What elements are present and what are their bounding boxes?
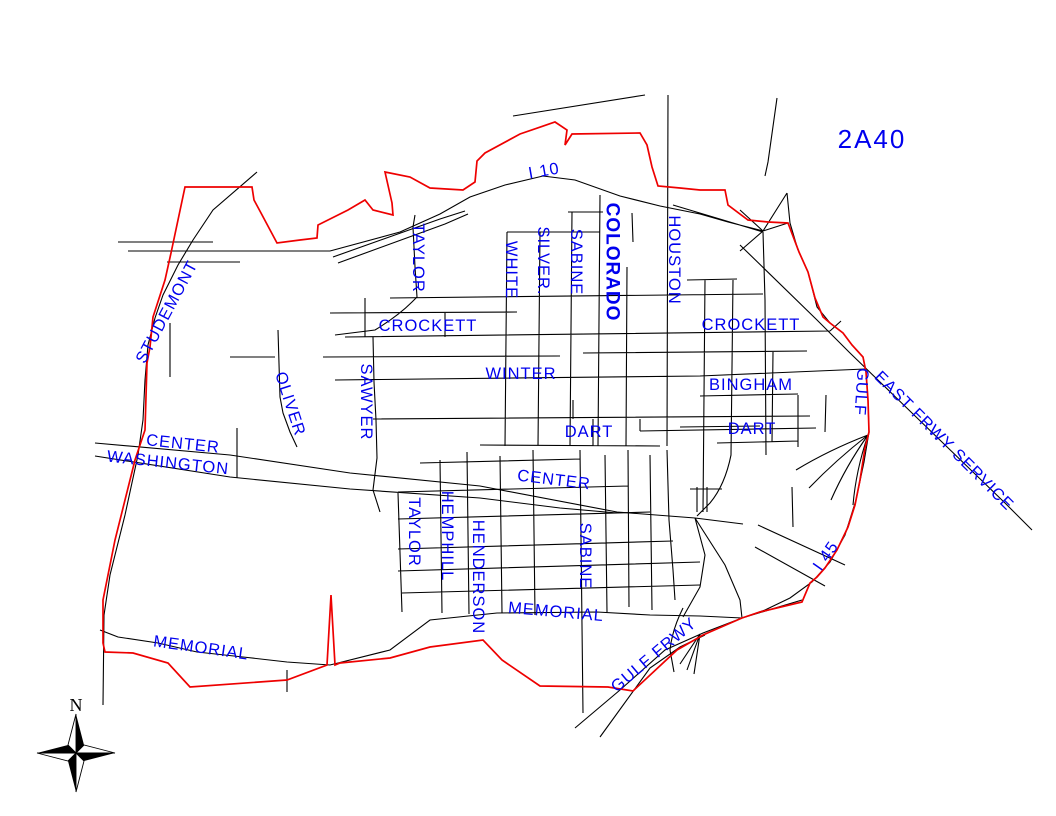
street-label-taylor-south: TAYLOR (405, 497, 423, 567)
street-label-gulf: GULF (850, 367, 871, 416)
street-label-henderson: HENDERSON (469, 520, 487, 634)
highway-gulf-corridor-line (740, 223, 1032, 618)
map-title: 2A40 (838, 124, 907, 154)
street-label-winter: WINTER (485, 365, 556, 383)
street-label-hemphill: HEMPHILL (438, 491, 456, 582)
street-network (95, 95, 1032, 737)
street-label-colorado: COLORADO (602, 203, 623, 322)
street-label-sawyer: SAWYER (357, 364, 375, 441)
street-label-crockett-east: CROCKETT (702, 316, 801, 334)
street-labels: I 10 STUDEMONT TAYLOR WHITE SILVER. SABI… (106, 159, 1017, 696)
compass-rose: N (37, 695, 115, 792)
street-grid-south (398, 450, 700, 713)
street-label-white: WHITE (502, 241, 520, 299)
street-label-i45: I 45 (810, 538, 843, 574)
street-label-oliver: OLIVER (271, 370, 309, 439)
map-canvas: I 10 STUDEMONT TAYLOR WHITE SILVER. SABI… (0, 0, 1056, 816)
street-label-dart-center: DART (565, 423, 614, 441)
street-label-dart-east: DART (728, 420, 777, 438)
compass-north-label: N (70, 695, 83, 715)
street-label-bingham: BINGHAM (709, 376, 793, 394)
street-label-sabine-north: SABINE (567, 229, 585, 296)
street-label-houston: HOUSTON (665, 215, 683, 304)
street-label-sabine-south: SABINE (576, 523, 594, 590)
street-grid-north (323, 95, 865, 516)
street-label-memorial-center: MEMORIAL (507, 599, 604, 625)
street-label-i10: I 10 (527, 159, 561, 182)
street-label-taylor-north: TAYLOR (409, 223, 427, 293)
highway-i10-line (330, 95, 798, 263)
street-label-memorial-west: MEMORIAL (152, 632, 250, 663)
street-label-silver: SILVER. (534, 226, 552, 295)
street-label-east-frwy-service: EAST FRWY SERVICE (871, 368, 1017, 514)
street-label-crockett-west: CROCKETT (379, 317, 478, 335)
